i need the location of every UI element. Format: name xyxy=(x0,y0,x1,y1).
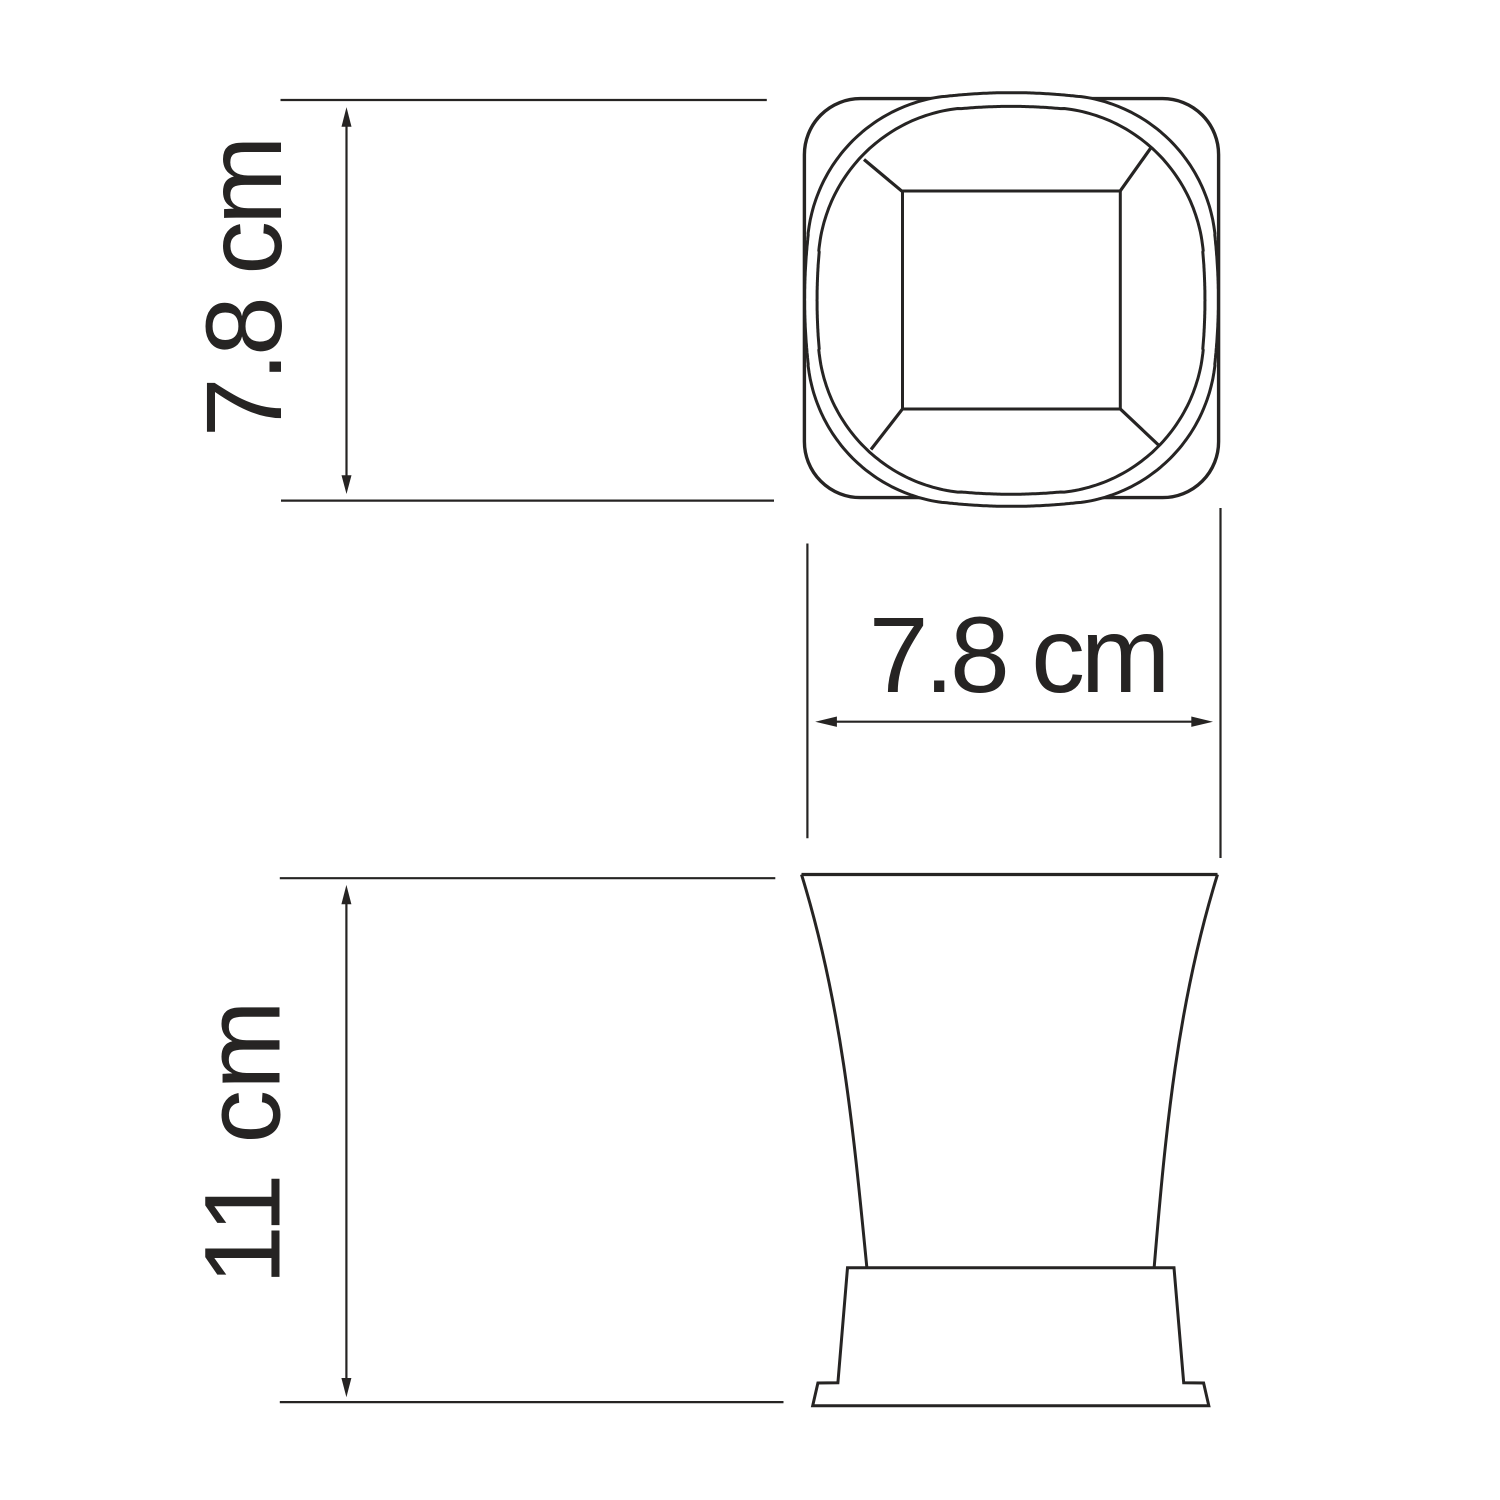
svg-text:7.8 cm: 7.8 cm xyxy=(869,595,1166,715)
svg-text:11 cm: 11 cm xyxy=(183,1000,303,1285)
svg-text:7.8 cm: 7.8 cm xyxy=(184,140,304,437)
